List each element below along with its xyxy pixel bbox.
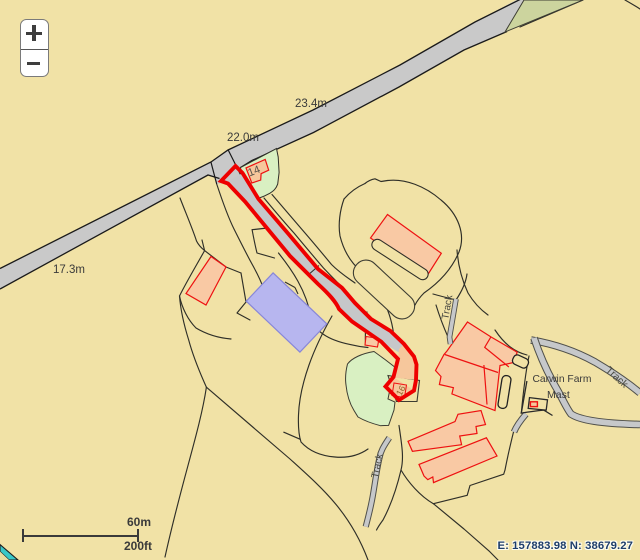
svg-text:22.0m: 22.0m	[227, 132, 259, 144]
svg-text:17.3m: 17.3m	[53, 264, 85, 276]
svg-text:23.4m: 23.4m	[295, 98, 327, 110]
svg-text:Carwin Farm: Carwin Farm	[533, 374, 592, 385]
svg-text:Mast: Mast	[547, 389, 570, 401]
